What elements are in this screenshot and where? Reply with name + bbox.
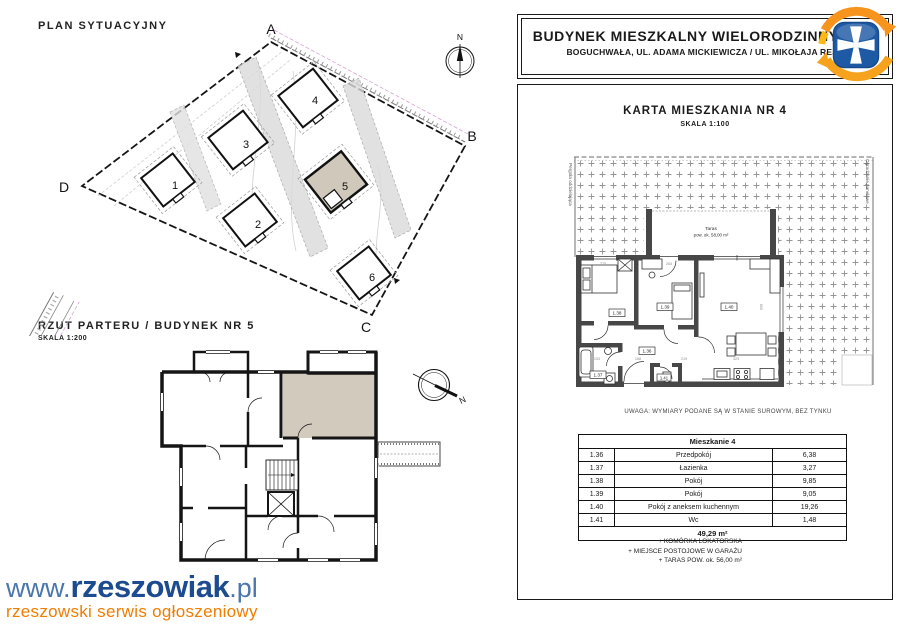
dim-805: 805: [759, 304, 763, 310]
table-row: 1.40 Pokój z aneksem kuchennym 19,26: [579, 501, 847, 514]
cell-area: 19,26: [773, 501, 847, 514]
site-compass-icon: N: [446, 32, 474, 78]
dim-275: 275: [600, 262, 606, 266]
building-2: [216, 186, 284, 253]
apartment-card-title: KARTA MIESZKANIA NR 4: [518, 105, 892, 117]
cell-no: 1.39: [579, 488, 615, 501]
floor-plan-walls: N: [160, 350, 468, 563]
balcony-extension: [378, 442, 440, 466]
site-plan-drawing: ULICA ADAMA MICKIEWICZA ULICA MIKOŁAJA R…: [28, 16, 506, 336]
street-mickiewicza-label: ULICA ADAMA MICKIEWICZA: [28, 16, 52, 41]
brand-tld: .pl: [229, 573, 258, 603]
cell-area: 6,38: [773, 449, 847, 462]
page: PLAN SYTUACYJNY ULICA ADAMA MICKIEWICZA …: [0, 0, 900, 636]
cell-no: 1.36: [579, 449, 615, 462]
building-5-label: 5: [342, 181, 348, 193]
pergola-label: Pergola oddzielająca: [568, 163, 573, 206]
building-1-label: 1: [172, 180, 178, 192]
cell-no: 1.37: [579, 462, 615, 475]
cell-name: Łazienka: [615, 462, 773, 475]
corner-d-label: D: [59, 179, 69, 195]
table-row: 1.37 Łazienka 3,27: [579, 462, 847, 475]
table-row: 1.41 Wc 1,48: [579, 514, 847, 527]
cell-area: 9,85: [773, 475, 847, 488]
building-3-label: 3: [243, 139, 249, 151]
corner-c-label: C: [361, 319, 371, 335]
cell-no: 1.38: [579, 475, 615, 488]
brand-www: www.: [6, 573, 71, 603]
cell-area: 3,27: [773, 462, 847, 475]
dim-153: 153: [594, 357, 600, 361]
site-compass-n: N: [457, 32, 463, 42]
floor-compass-n: N: [457, 394, 467, 406]
room-label-138: 1.38: [613, 311, 622, 316]
cell-no: 1.41: [579, 514, 615, 527]
brand-logo: www.rzeszowiak.pl rzeszowski serwis ogło…: [6, 569, 258, 622]
dim-263: 263: [666, 262, 672, 266]
extras-notes: + KOMÓRKA LOKATORSKA + MIEJSCE POSTOJOWE…: [578, 537, 846, 566]
brand-url: www.rzeszowiak.pl: [6, 569, 258, 605]
dim-168: 168: [635, 357, 641, 361]
fence-label: Ogrodzenie panelowe: [865, 159, 870, 204]
cell-name: Pokój: [615, 475, 773, 488]
terrace-label: Taras: [705, 226, 717, 232]
apartment-plan-drawing: Pergola oddzielająca Ogrodzenie panelowe…: [564, 147, 886, 401]
cell-area: 9,05: [773, 488, 847, 501]
floor-plan-drawing: N: [148, 338, 490, 586]
extra-item: + TARAS POW. ok. 56,00 m²: [578, 556, 742, 566]
cell-name: Wc: [615, 514, 773, 527]
staircase: [266, 460, 298, 490]
street-mickiewicza: ULICA ADAMA MICKIEWICZA: [28, 16, 137, 86]
floor-plan-scale: SKALA 1:200: [38, 335, 87, 342]
internal-road: [343, 78, 411, 238]
highlighted-apartment-area: [283, 373, 376, 438]
terrace: Taras pow. ok. 58,00 m²: [646, 209, 776, 255]
building-6-label: 6: [369, 272, 375, 284]
dim-219: 219: [681, 357, 687, 361]
room-label-137: 1.37: [594, 373, 603, 378]
cell-no: 1.40: [579, 501, 615, 514]
table-row: 1.38 Pokój 9,85: [579, 475, 847, 488]
table-row: 1.39 Pokój 9,05: [579, 488, 847, 501]
brand-tagline: rzeszowski serwis ogłoszeniowy: [6, 602, 258, 622]
terrace-area-label: pow. ok. 58,00 m²: [694, 233, 729, 238]
rzeszow-crest-logo: [812, 1, 900, 89]
table-row: 1.36 Przedpokój 6,38: [579, 449, 847, 462]
building-2-label: 2: [255, 219, 261, 231]
room-label-136: 1.36: [643, 349, 652, 354]
survey-mark: [235, 52, 241, 58]
floor-compass-icon: N: [413, 370, 467, 406]
dimensions-note: UWAGA: WYMIARY PODANE SĄ W STANIE SUROWY…: [578, 409, 878, 415]
apartment-card-box: KARTA MIESZKANIA NR 4 SKALA 1:100 P: [517, 84, 893, 600]
building-4-label: 4: [312, 95, 318, 107]
room-label-139: 1.39: [661, 305, 670, 310]
survey-mark: [394, 278, 400, 284]
crest-shield-icon: [834, 23, 879, 68]
building-4: [271, 62, 344, 135]
elevator: [268, 492, 294, 516]
brand-name: rzeszowiak: [71, 569, 230, 604]
cell-name: Pokój: [615, 488, 773, 501]
cell-area: 1,48: [773, 514, 847, 527]
cell-name: Przedpokój: [615, 449, 773, 462]
table-header-row: Mieszkanie 4: [579, 435, 847, 449]
table-header: Mieszkanie 4: [579, 435, 847, 449]
corner-b-label: B: [467, 128, 476, 144]
corner-a-label: A: [266, 21, 276, 37]
apartment-card-scale: SKALA 1:100: [518, 121, 892, 128]
building-6: [330, 239, 398, 306]
extra-item: + MIEJSCE POSTOJOWE W GARAŻU: [578, 547, 742, 557]
street-reja: ULICA MIKOŁAJA REJA: [28, 289, 79, 336]
room-label-140: 1.40: [725, 305, 734, 310]
dim-323: 323: [733, 357, 739, 361]
room-label-141: 1.41: [660, 376, 669, 381]
cell-name: Pokój z aneksem kuchennym: [615, 501, 773, 514]
rooms-table: Mieszkanie 4 1.36 Przedpokój 6,38 1.37 Ł…: [578, 434, 847, 541]
extra-item: + KOMÓRKA LOKATORSKA: [578, 537, 742, 547]
plot-boundary: [82, 42, 465, 315]
